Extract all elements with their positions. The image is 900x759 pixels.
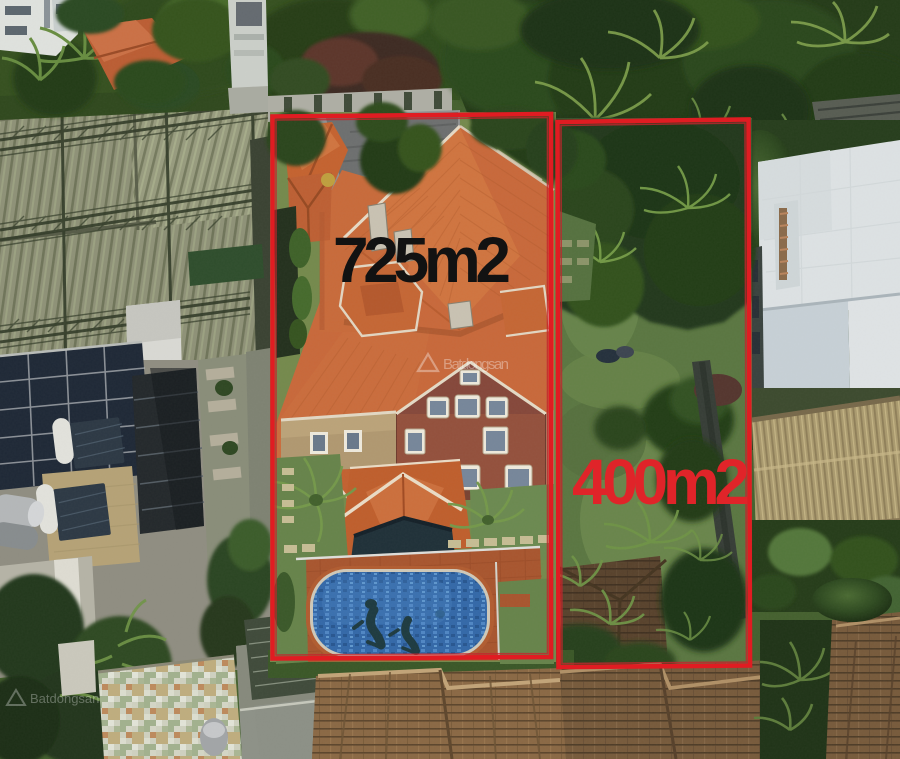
svg-text:400m2: 400m2 [572,446,750,518]
svg-text:Batdongsan: Batdongsan [443,356,509,373]
svg-text:Batdongsan: Batdongsan [30,691,99,706]
svg-text:725m2: 725m2 [333,224,511,296]
